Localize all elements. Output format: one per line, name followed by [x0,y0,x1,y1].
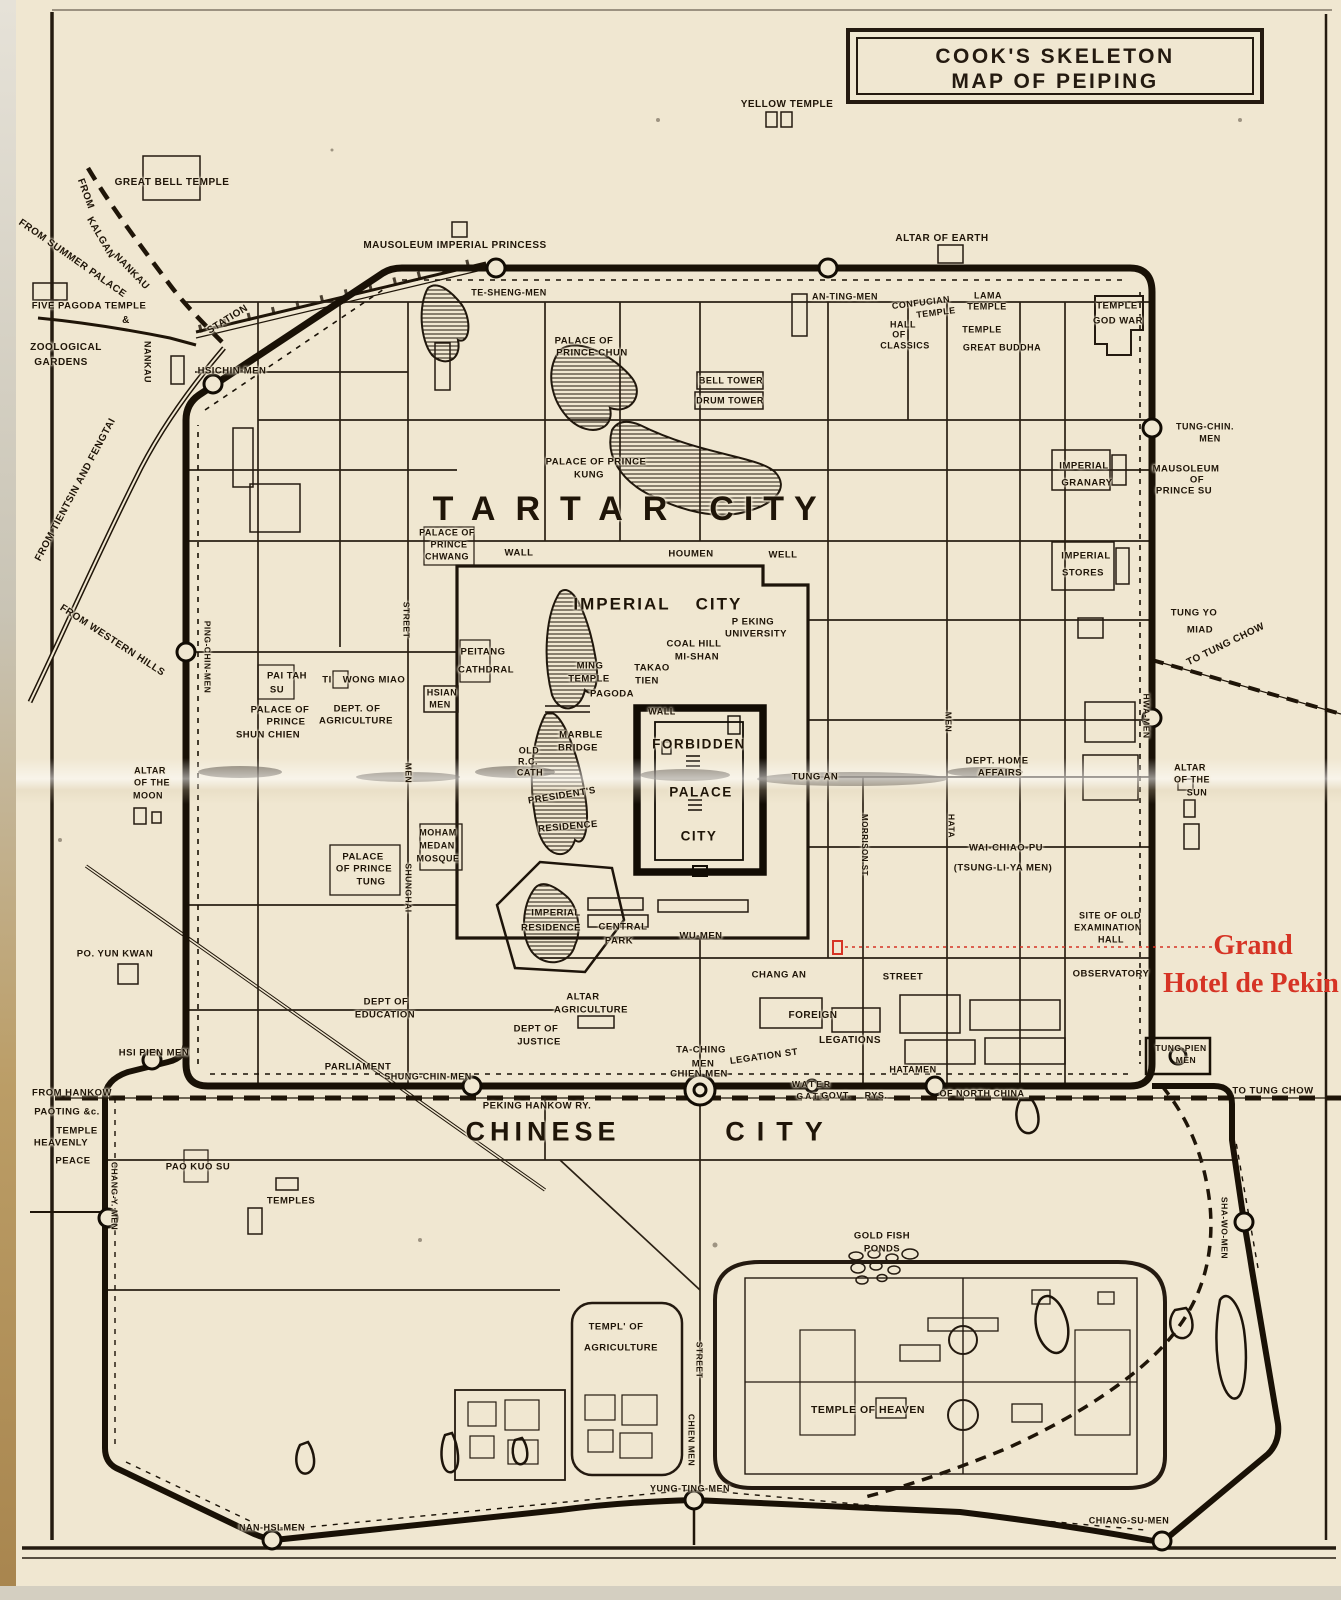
map-label: R.C. [518,758,538,767]
map-label: CHANG-Y. MEN [110,1162,119,1230]
map-label: TI [322,675,331,685]
map-label: CATH [517,769,543,778]
map-label: CENTRAL [599,922,648,932]
map-label: PALACE OF [251,705,310,715]
map-label: COAL HILL [667,639,722,649]
map-label: TEMPLE [56,1126,98,1136]
map-label: EXAMINATION [1074,924,1142,933]
map-label: PRINCE [430,541,467,550]
map-label: MEN [1176,1056,1196,1065]
map-label: SITE OF OLD [1079,912,1141,921]
map-label: & [122,316,130,326]
map-label: PRINCE SU [1156,486,1212,496]
map-label: TE-SHENG-MEN [471,289,547,298]
temple-of-heaven [715,1262,1165,1488]
map-label: DEPT. HOME [965,756,1028,766]
map-label: PAO KUO SU [166,1162,230,1172]
map-label: OLD [519,747,540,756]
map-label: WELL [769,550,798,560]
map-label: PING-CHIN-MEN [203,621,212,694]
map-label: HSI PIEN MEN [119,1048,189,1058]
map-label: DEPT OF [514,1024,559,1034]
terrain-blobs [296,1100,1246,1474]
map-label: MAUSOLEUM IMPERIAL PRINCESS [363,241,546,251]
map-title-line1: COOK'S SKELETON [848,45,1262,69]
map-label: YELLOW TEMPLE [741,100,834,110]
map-label: IMPERIAL [531,908,580,918]
map-label: GOVT. [821,1092,851,1101]
map-label: TUNG [357,877,386,887]
map-label: FOREIGN [788,1011,837,1021]
map-label: OF [892,331,906,340]
map-label: MING [577,661,604,671]
map-label: BRIDGE [558,743,598,753]
map-label: MEN [429,701,451,710]
map-label: NAN-HSI-MEN [239,1524,305,1533]
map-label: PEKING HANKOW RY. [483,1101,591,1111]
map-label: AFFAIRS [978,768,1022,778]
map-label: TA-CHING [676,1045,726,1055]
map-label: HSIAN [427,689,458,698]
map-label: MEDAN [419,842,455,851]
map-label: WONG MIAO [343,675,406,685]
map-label: LEGATIONS [819,1036,881,1046]
map-label: WAI-CHIAO-PU [969,843,1043,853]
map-label: OF THE [1174,776,1210,785]
map-label: RYS. [865,1092,888,1101]
map-label: PRINCE [267,717,306,727]
map-page: COOK'S SKELETON MAP OF PEIPING Grand Hot… [0,0,1341,1600]
map-label: STREET [402,602,411,639]
map-label: PAI TAH [267,671,307,681]
map-label: PARK [605,936,633,946]
map-label: TEMPLE [967,303,1007,312]
map-label: HATAMEN [889,1066,936,1075]
map-label: AGRICULTURE [554,1005,628,1015]
map-label: (TSUNG-LI-YA MEN) [954,863,1053,873]
map-label: WALL [648,708,676,717]
map-label: PALACE OF [419,529,475,538]
map-label: YUNG-TING-MEN [650,1485,730,1494]
map-label: HSICHIN-MEN [198,366,267,376]
map-label: MAUSOLEUM [1153,464,1220,474]
map-label: DRUM TOWER [696,397,764,406]
map-label: TEMPLE [962,326,1002,335]
map-label: RESIDENCE [521,923,581,933]
map-label: CHINESE [465,1119,620,1146]
map-label: TIEN [635,676,659,686]
map-label: TEMPL' OF [589,1322,644,1332]
map-label: OF THE [134,779,170,788]
map-label: MIAD [1187,625,1213,635]
map-label: SU [270,685,284,695]
map-label: PALACE [342,852,383,862]
map-label: PEACE [55,1156,90,1166]
map-label: IMPERIAL [573,596,670,613]
gold-fish-ponds [849,1249,918,1284]
map-label: HWA-MEN [1142,693,1151,738]
map-label: GREAT BUDDHA [963,344,1041,353]
map-label: P EKING [732,617,774,627]
map-label: PALACE OF [555,336,614,346]
map-label: TEMPLE [568,674,610,684]
temple-of-agriculture [455,1303,682,1480]
map-label: MORRISON ST [860,814,868,876]
map-label: STREET [695,1342,704,1379]
map-label: WALL [505,548,534,558]
map-label: GRANARY [1061,478,1112,488]
map-label: PARLIAMENT [325,1062,392,1072]
map-label: TUNG-CHIN. [1176,423,1234,432]
map-label: PEITANG [460,647,505,657]
map-label: SHUNGHAI [404,863,413,912]
map-label: PONDS [864,1244,900,1254]
map-label: CITY [696,596,743,613]
map-label: DEPT OF [364,997,409,1007]
map-label: HOUMEN [668,549,713,559]
map-label: CITY [709,492,826,526]
map-label: HALL [890,321,916,330]
map-label: MOON [133,792,163,801]
map-label: SHA-WO-MEN [1220,1197,1229,1259]
map-label: CITY [681,829,718,843]
map-label: OBSERVATORY [1073,969,1150,979]
map-label: ALTAR [566,992,599,1002]
map-label: GOLD FISH [854,1231,910,1241]
map-label: MOSQUE [416,855,459,864]
hotel-annotation-line2: Hotel de Pekin [1163,968,1339,1000]
map-label: IMPERIAL [1059,461,1108,471]
map-label: ALTAR OF EARTH [895,234,988,244]
map-label: TEMPLE [1096,301,1138,311]
map-label: IMPERIAL [1061,551,1110,561]
map-label: UNIVERSITY [725,629,787,639]
hotel-annotation-line1: Grand [1213,930,1292,962]
map-label: TUNG YO [1171,608,1218,618]
map-label: TO TUNG CHOW [1232,1086,1313,1096]
map-label: MEN [944,712,953,732]
map-label: CHWANG [425,553,469,562]
map-label: EDUCATION [355,1010,415,1020]
map-label: TAKAO [634,663,670,673]
map-label: TEMPLE OF HEAVEN [811,1405,925,1416]
map-label: HALL [1098,936,1124,945]
map-label: STORES [1062,568,1104,578]
map-label: GOD WAR [1093,316,1143,326]
map-label: FORBIDDEN [652,737,746,751]
map-label: OF PRINCE [336,864,392,874]
map-label: CHIANG-SU-MEN [1089,1517,1170,1526]
map-label: TUNG AN [792,772,838,782]
map-label: CITY [725,1119,835,1146]
map-label: MOHAM [419,829,457,838]
map-label: OF [1190,475,1204,485]
map-label: HEAVENLY [34,1138,88,1148]
map-label: GREAT BELL TEMPLE [115,178,230,188]
map-label: PALACE [669,785,733,799]
map-label: STREET [883,972,923,982]
map-label: SUN [1187,789,1208,798]
map-label: PO. YUN KWAN [77,949,154,959]
map-label: ZOOLOGICAL [30,343,102,353]
map-label: OF NORTH CHINA [940,1090,1025,1099]
map-label: FIVE PAGODA TEMPLE [32,301,147,311]
map-label: CHIEN MEN [687,1414,696,1466]
map-label: HATA [947,814,956,838]
map-label: WATER [792,1080,832,1089]
map-label: ALTAR [1174,764,1206,773]
map-label: ALTAR [134,767,166,776]
map-label: WU-MEN [679,931,722,941]
map-label: MARBLE [559,730,603,740]
map-title-line2: MAP OF PEIPING [848,70,1262,94]
map-label: JUSTICE [517,1037,561,1047]
map-label: CATHDRAL [458,665,514,675]
map-label: AGRICULTURE [584,1343,658,1353]
map-label: MI-SHAN [675,652,719,662]
map-label: TARTAR [433,492,688,526]
map-label: AGRICULTURE [319,716,393,726]
map-label: CHANG AN [752,970,807,980]
hotel-marker [833,941,1216,954]
map-label: GARDENS [34,358,88,368]
map-label: MEN [404,763,413,783]
map-label: SHUN CHIEN [236,730,300,740]
map-label: FROM HANKOW [32,1088,112,1098]
map-label: PRINCE CHUN [556,348,627,358]
map-label: PALACE OF PRINCE [546,457,647,467]
map-label: LAMA [974,292,1002,301]
map-label: KUNG [574,470,604,480]
map-label: MEN [1199,435,1221,444]
map-label: DEPT. OF [334,704,381,714]
map-label: SHUNG-CHIN-MEN [384,1073,472,1082]
map-label: PAOTING &c. [34,1107,100,1117]
map-label: BELL TOWER [699,377,763,386]
map-label: CLASSICS [880,342,930,351]
map-label: NANKAU [143,341,152,383]
map-label: TUNG-PIEN [1155,1044,1206,1053]
map-label: CHIEN MEN [670,1069,728,1079]
map-label: TEMPLES [267,1196,315,1206]
map-label: AN-TING-MEN [812,293,878,302]
map-label: PAGODA [590,689,634,699]
